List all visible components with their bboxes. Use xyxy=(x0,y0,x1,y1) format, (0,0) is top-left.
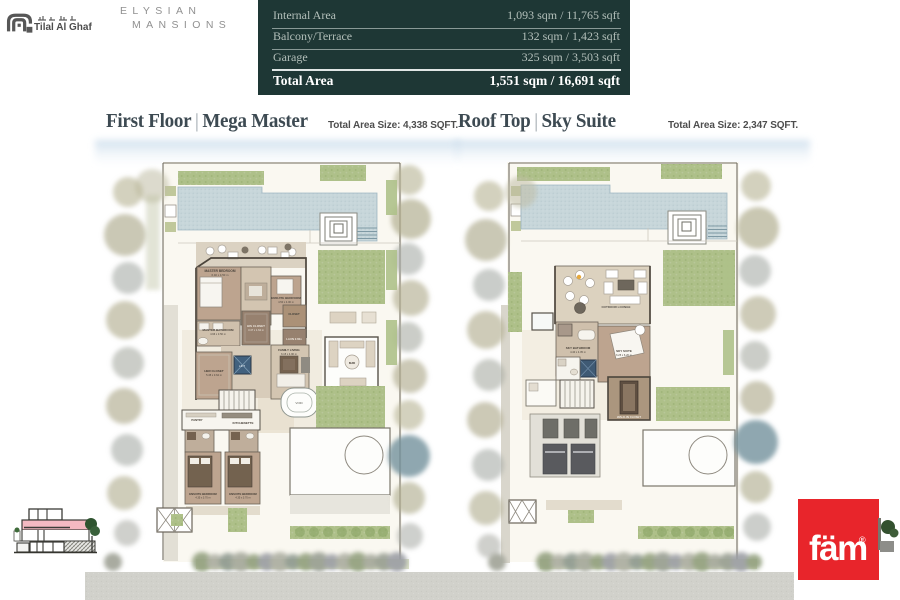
svg-text:WALK-IN CLOSET: WALK-IN CLOSET xyxy=(617,415,641,419)
svg-text:4.50 x 4.00 m: 4.50 x 4.00 m xyxy=(278,300,294,304)
svg-text:SKY SUITE: SKY SUITE xyxy=(616,349,632,353)
svg-text:6.25 x 6.20 m: 6.25 x 6.20 m xyxy=(616,353,632,357)
svg-text:LIFT: LIFT xyxy=(239,364,245,368)
svg-text:3.47 x 1.64 m: 3.47 x 1.64 m xyxy=(248,328,264,332)
svg-text:5.45 x 3.64 m: 5.45 x 3.64 m xyxy=(206,373,222,377)
svg-text:6.15 x 4.90 m: 6.15 x 4.90 m xyxy=(281,352,297,356)
svg-text:MJD: MJD xyxy=(349,361,356,365)
svg-text:LAUN 2.60x: LAUN 2.60x xyxy=(286,337,302,341)
svg-text:MASTER BATHROOM: MASTER BATHROOM xyxy=(203,328,234,332)
svg-text:FAMILY LIVING: FAMILY LIVING xyxy=(278,348,300,352)
svg-text:PANTRY: PANTRY xyxy=(191,418,202,422)
svg-text:4.35 x 3.70 m: 4.35 x 3.70 m xyxy=(195,497,210,500)
svg-text:4.96 x 3.50 m: 4.96 x 3.50 m xyxy=(210,332,226,336)
svg-text:ENSUITE BEDROOM: ENSUITE BEDROOM xyxy=(271,296,301,300)
svg-text:ENSUITE BEDROOM: ENSUITE BEDROOM xyxy=(229,492,257,496)
svg-text:6.40 x 4.50 m: 6.40 x 4.50 m xyxy=(212,273,230,277)
svg-text:OUTDOOR LOUNGE: OUTDOOR LOUNGE xyxy=(602,305,631,309)
svg-text:4.35 x 3.70 m: 4.35 x 3.70 m xyxy=(235,497,250,500)
svg-text:HER CLOSET: HER CLOSET xyxy=(204,369,224,373)
svg-text:CLOSET: CLOSET xyxy=(288,312,300,316)
svg-text:4.40 x 4.05 m: 4.40 x 4.05 m xyxy=(570,350,586,354)
svg-text:VOID: VOID xyxy=(295,401,303,405)
svg-text:HIS CLOSET: HIS CLOSET xyxy=(247,324,265,328)
svg-text:KITCHENETTE: KITCHENETTE xyxy=(233,421,254,425)
svg-text:SKY BATHROOM: SKY BATHROOM xyxy=(566,346,591,350)
svg-text:ENSUITE BEDROOM: ENSUITE BEDROOM xyxy=(189,492,217,496)
